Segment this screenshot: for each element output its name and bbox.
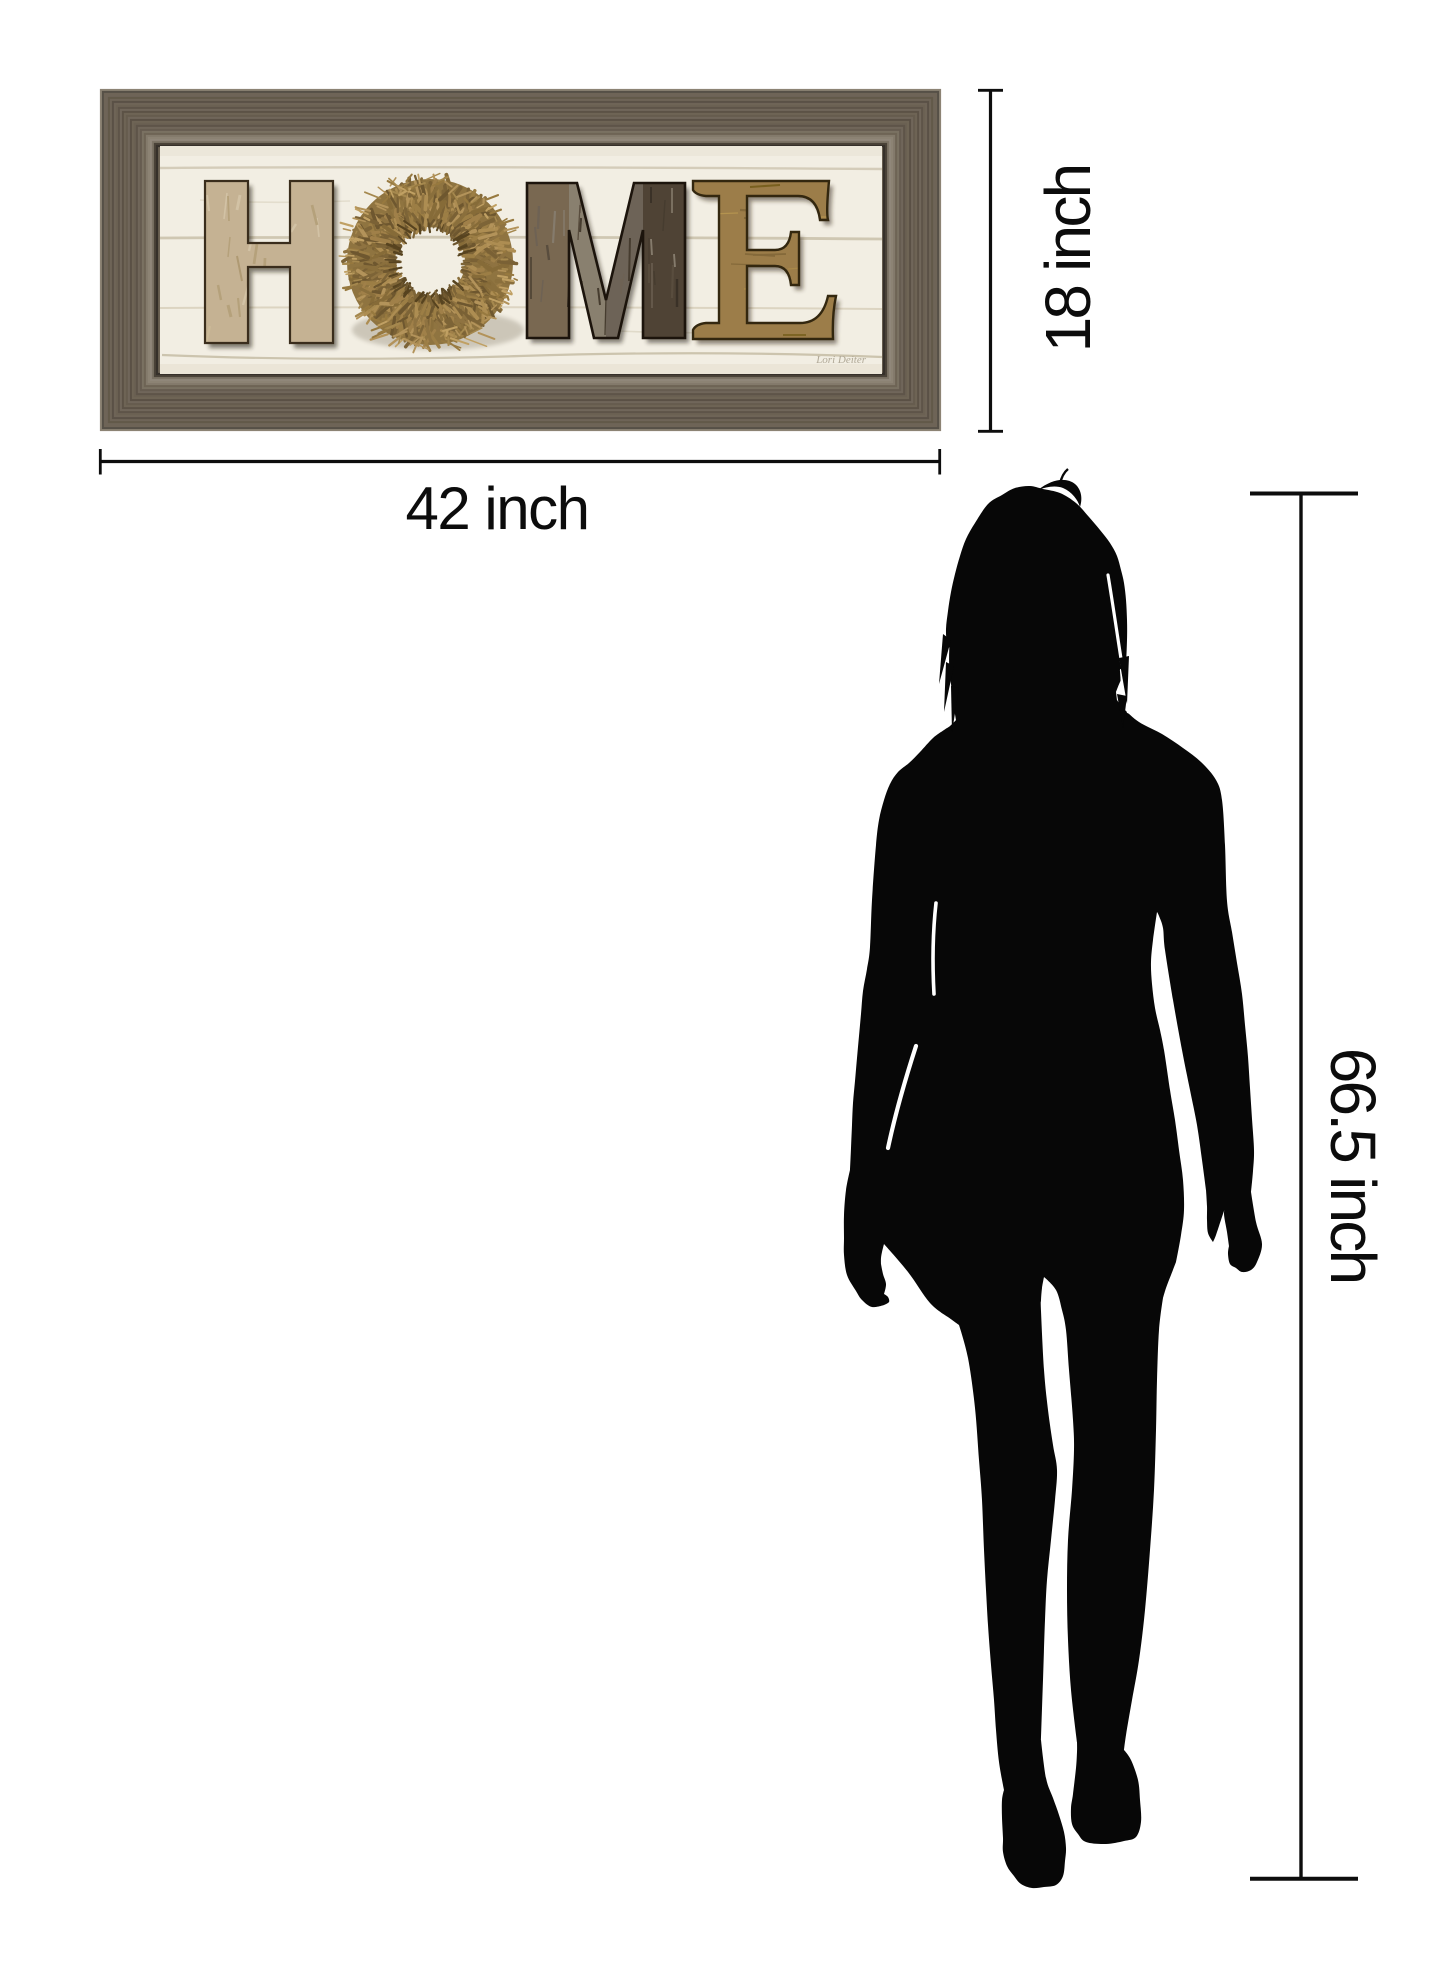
svg-text:42 inch: 42 inch xyxy=(406,475,589,542)
svg-text:18 inch: 18 inch xyxy=(1032,166,1104,353)
svg-text:66.5 inch: 66.5 inch xyxy=(1317,1048,1389,1283)
svg-text:Lori Deiter: Lori Deiter xyxy=(815,354,867,366)
